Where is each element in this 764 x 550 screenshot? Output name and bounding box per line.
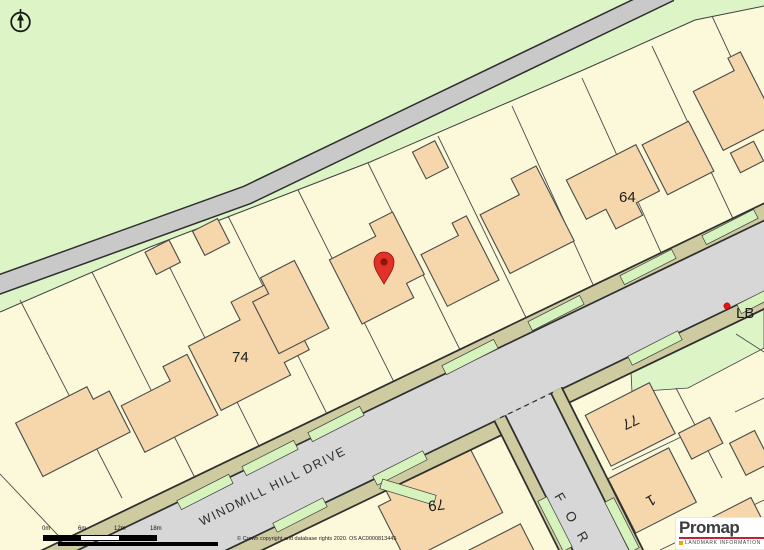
scale-bar: 0m 6m 12m 18m	[42, 526, 227, 548]
house-number-74: 74	[232, 349, 249, 366]
house-number-79: 79	[427, 495, 446, 514]
scale-label-0: 0m	[42, 526, 50, 532]
logo-dot-icon	[679, 541, 683, 545]
north-arrow-icon	[7, 8, 34, 35]
scale-label-6: 6m	[78, 526, 86, 532]
logo-tagline-row: LANDMARK INFORMATION	[679, 540, 764, 546]
scale-label-12: 12m	[114, 526, 126, 532]
scale-bar-segments	[43, 535, 157, 541]
logo-rule	[679, 537, 764, 539]
letter-box-label: LB	[736, 305, 754, 322]
promap-logo: Promap LANDMARK INFORMATION	[676, 518, 764, 549]
letter-box-dot	[724, 303, 730, 309]
map-export-page: WINDMILL HILL DRIVE FOR 74 64 77 1 79 LB…	[0, 0, 764, 550]
logo-tagline: LANDMARK INFORMATION	[685, 540, 761, 546]
house-number-64: 64	[619, 189, 636, 206]
promap-wordmark: Promap	[679, 519, 764, 536]
scale-label-18: 18m	[150, 526, 162, 532]
scale-bar-solid	[58, 542, 218, 546]
copyright-attribution: © Crown copyright and database rights 20…	[237, 536, 396, 542]
map-canvas[interactable]: WINDMILL HILL DRIVE FOR 74 64 77 1 79 LB	[0, 0, 764, 550]
